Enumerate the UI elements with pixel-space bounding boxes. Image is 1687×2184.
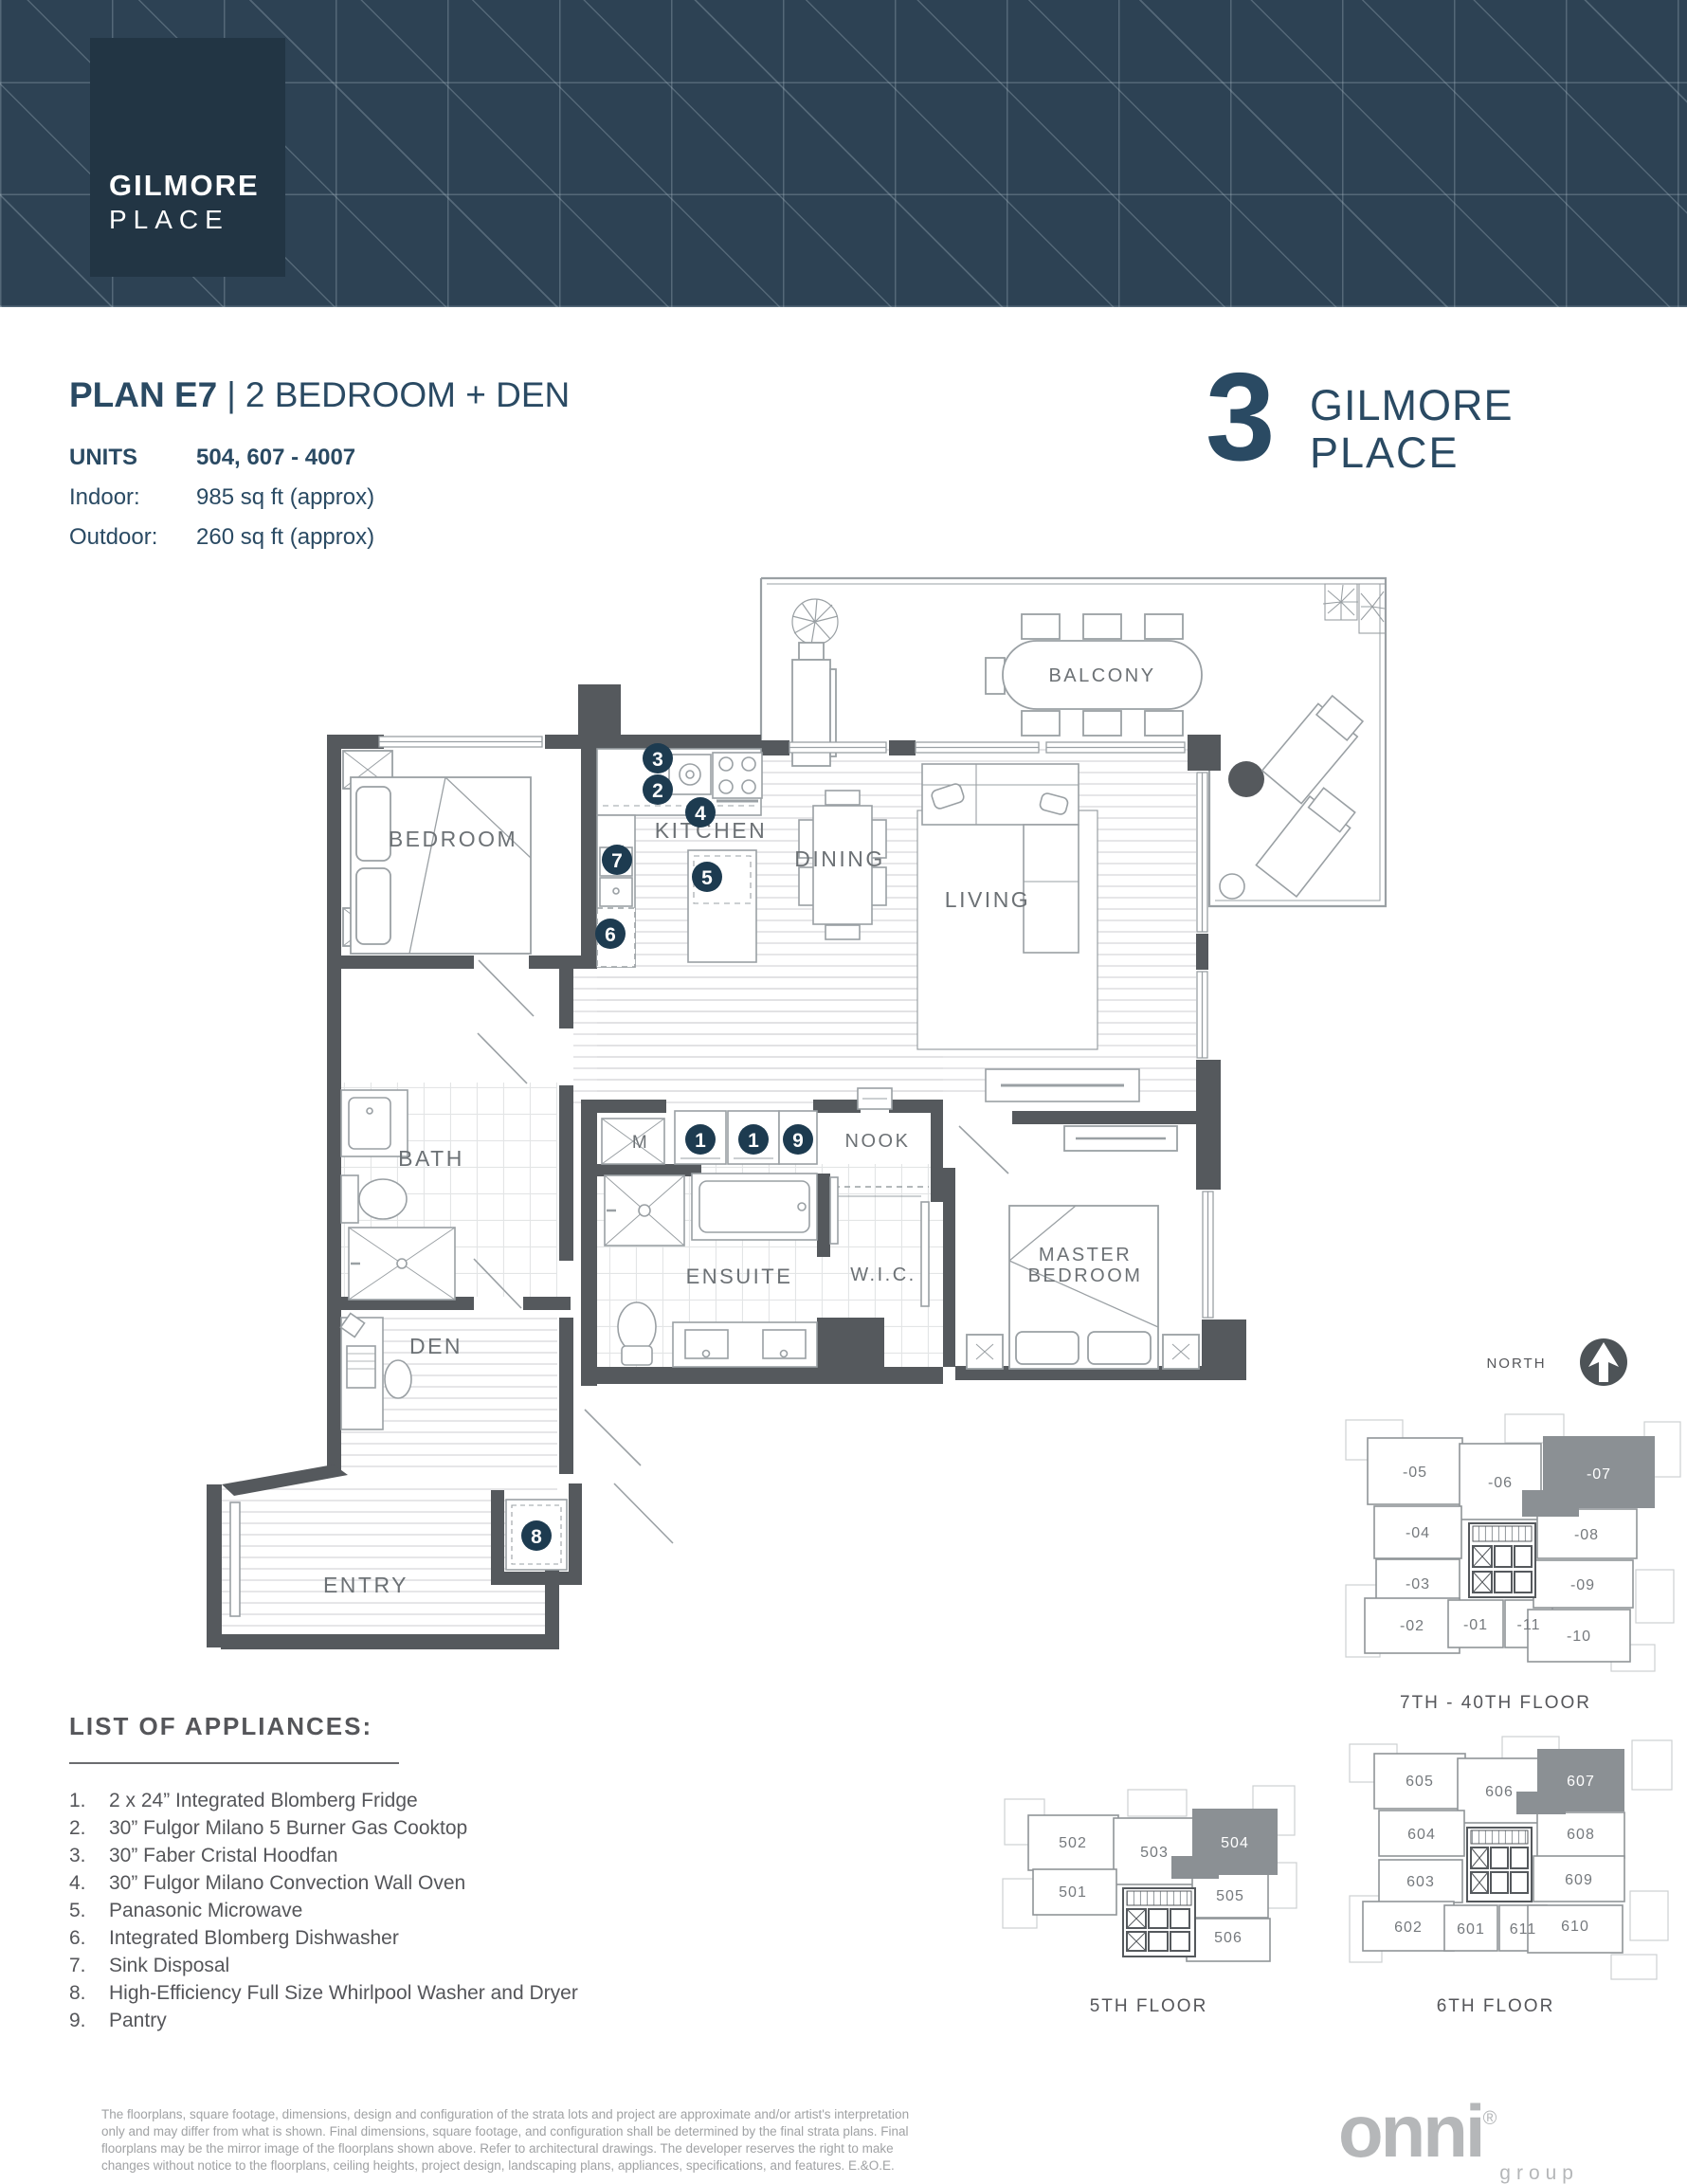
svg-text:609: 609 — [1565, 1872, 1593, 1888]
svg-text:-08: -08 — [1574, 1527, 1599, 1543]
keyplan-sixth: 605 606 607 604 608 603 609 602 601 611 … — [1350, 1737, 1672, 2016]
appliance-list: LIST OF APPLIANCES: 1.2 x 24” Integrated… — [69, 1712, 578, 2034]
appliance-list-heading: LIST OF APPLIANCES: — [69, 1712, 578, 1741]
marker-pantry: 9 — [783, 1124, 813, 1155]
plant-icon — [792, 599, 838, 645]
svg-text:505: 505 — [1216, 1888, 1244, 1904]
svg-text:1: 1 — [695, 1130, 706, 1152]
svg-text:-07: -07 — [1587, 1466, 1611, 1483]
svg-text:605: 605 — [1406, 1774, 1434, 1790]
label-ensuite: ENSUITE — [686, 1265, 793, 1288]
keyplan-fifth: 502 503 504 501 505 506 5TH FLOOR — [1003, 1786, 1297, 2016]
balcony-side-table — [1228, 761, 1264, 797]
svg-text:504: 504 — [1221, 1835, 1249, 1851]
svg-text:5: 5 — [701, 867, 713, 889]
svg-text:606: 606 — [1485, 1784, 1514, 1800]
svg-text:604: 604 — [1407, 1827, 1436, 1843]
marker-fridge: 1 — [738, 1124, 769, 1155]
bedroom-furniture — [343, 751, 531, 954]
planter-icons — [1323, 584, 1386, 633]
label-bath: BATH — [398, 1146, 464, 1171]
marker-fridge: 1 — [685, 1124, 716, 1155]
marker-hoodfan: 3 — [643, 743, 673, 773]
marker-washer: 8 — [521, 1520, 552, 1551]
onni-wordmark: onni® — [1338, 2089, 1497, 2173]
balcony-stool — [1220, 874, 1244, 899]
svg-text:503: 503 — [1140, 1845, 1169, 1861]
svg-text:610: 610 — [1561, 1919, 1589, 1935]
north-label: NORTH — [1486, 1356, 1546, 1372]
svg-text:8: 8 — [531, 1526, 542, 1548]
label-den: DEN — [409, 1334, 463, 1358]
label-wic: W.I.C. — [850, 1265, 916, 1285]
keyplan-upper: -05 -06 -07 -04 -08 -03 -09 -02 -01 -11 … — [1346, 1414, 1680, 1713]
appliance-item: 3.30” Faber Cristal Hoodfan — [69, 1842, 578, 1869]
svg-text:603: 603 — [1406, 1874, 1435, 1890]
svg-text:-01: -01 — [1463, 1617, 1488, 1633]
appliance-item: 5.Panasonic Microwave — [69, 1897, 578, 1924]
label-bedroom: BEDROOM — [389, 827, 517, 851]
keyplan-sixth-core — [1467, 1828, 1532, 1902]
appliance-item: 4.30” Fulgor Milano Convection Wall Oven — [69, 1869, 578, 1897]
svg-text:-06: -06 — [1488, 1475, 1513, 1491]
label-dining: DINING — [794, 846, 885, 871]
keyplan-sixth-caption: 6TH FLOOR — [1437, 1996, 1555, 2016]
disclaimer-text: The floorplans, square footage, dimensio… — [101, 2106, 935, 2175]
svg-text:-03: -03 — [1406, 1576, 1430, 1592]
svg-text:7: 7 — [611, 850, 623, 872]
svg-text:607: 607 — [1567, 1774, 1595, 1790]
north-indicator: NORTH — [1486, 1338, 1627, 1386]
svg-text:-10: -10 — [1567, 1629, 1591, 1645]
appliance-item: 9.Pantry — [69, 2007, 578, 2034]
appliance-item: 8.High-Efficiency Full Size Whirlpool Wa… — [69, 1979, 578, 2007]
svg-text:-02: -02 — [1400, 1618, 1424, 1634]
svg-text:3: 3 — [652, 749, 663, 771]
label-living: LIVING — [945, 887, 1030, 912]
svg-text:-09: -09 — [1570, 1577, 1595, 1593]
label-m-closet: M — [632, 1133, 649, 1153]
keyplan-upper-caption: 7TH - 40TH FLOOR — [1400, 1693, 1591, 1713]
north-arrow-icon — [1580, 1338, 1627, 1386]
label-master-line1: MASTER — [1039, 1245, 1132, 1265]
svg-text:502: 502 — [1059, 1835, 1087, 1851]
marker-cooktop: 2 — [643, 774, 673, 805]
marker-disposal: 7 — [602, 845, 632, 875]
svg-text:506: 506 — [1214, 1930, 1243, 1946]
lounge-chair-icon — [1262, 692, 1368, 803]
svg-text:601: 601 — [1457, 1921, 1485, 1938]
marker-oven: 4 — [685, 797, 716, 828]
keyplan-upper-core — [1469, 1523, 1535, 1597]
keyplan-fifth-core — [1123, 1888, 1195, 1956]
svg-text:6: 6 — [605, 924, 616, 946]
floorplan-brochure-page: GILMORE PLACE PLAN E7|2 BEDROOM + DEN UN… — [0, 0, 1687, 2184]
svg-text:602: 602 — [1394, 1920, 1423, 1936]
svg-text:501: 501 — [1059, 1884, 1087, 1901]
marker-dishwasher: 6 — [595, 919, 626, 949]
svg-text:611: 611 — [1510, 1921, 1537, 1938]
label-entry: ENTRY — [323, 1573, 408, 1597]
keyplan-fifth-caption: 5TH FLOOR — [1090, 1996, 1208, 2016]
svg-text:1: 1 — [748, 1130, 759, 1152]
label-nook: NOOK — [845, 1131, 911, 1152]
appliance-item: 6.Integrated Blomberg Dishwasher — [69, 1924, 578, 1952]
onni-group-logo: onni® group — [1338, 2082, 1585, 2184]
label-master-line2: BEDROOM — [1028, 1265, 1143, 1286]
svg-text:-05: -05 — [1403, 1465, 1427, 1481]
appliance-item: 1.2 x 24” Integrated Blomberg Fridge — [69, 1787, 578, 1814]
label-balcony: BALCONY — [1048, 665, 1155, 686]
svg-text:608: 608 — [1567, 1827, 1595, 1843]
svg-text:-11: -11 — [1517, 1617, 1541, 1633]
appliance-list-rule — [69, 1762, 399, 1764]
lounge-chair-icon — [1256, 785, 1359, 897]
marker-microwave: 5 — [692, 862, 722, 892]
registered-mark: ® — [1483, 2108, 1497, 2129]
svg-text:2: 2 — [652, 780, 663, 802]
svg-text:9: 9 — [792, 1130, 804, 1152]
svg-text:-04: -04 — [1406, 1525, 1430, 1541]
appliance-item: 2.30” Fulgor Milano 5 Burner Gas Cooktop — [69, 1814, 578, 1842]
appliance-item: 7.Sink Disposal — [69, 1952, 578, 1979]
svg-text:4: 4 — [695, 803, 706, 825]
